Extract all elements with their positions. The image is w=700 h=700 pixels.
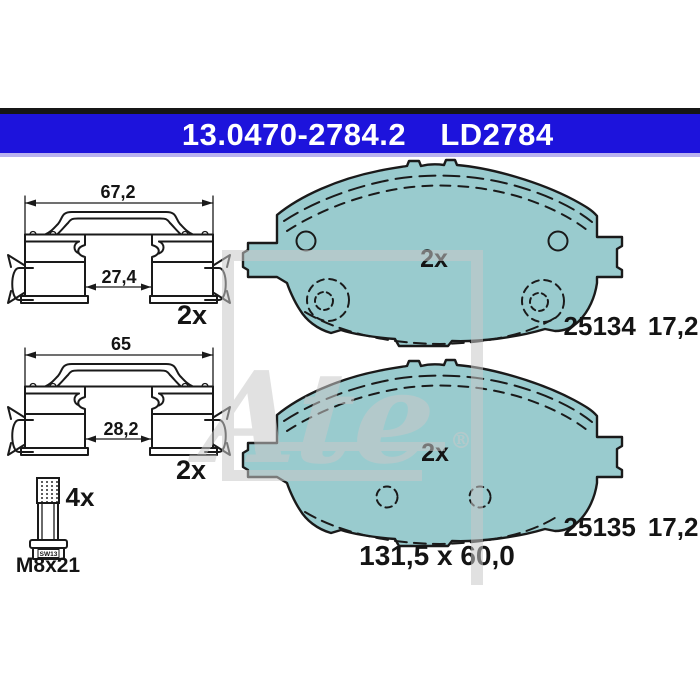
bolt-thread-size-label: M8x21 [16,554,81,577]
watermark-frame-top [222,250,483,261]
clip1-outer-width-label: 67,2 [100,182,135,202]
bolt-knurl [37,478,59,503]
clip2-inner-width-label: 28,2 [103,419,138,439]
watermark-brand-text: Ate [186,344,440,492]
product-image: 13.0470-2784.2 LD2784 [0,0,700,700]
technical-drawing: 67,2 27,4 2x 65 28,2 2x SW13 4x M8x21 [0,0,700,700]
bolt-flange [30,540,67,548]
clip2-outer-width-label: 65 [111,334,131,354]
pad1-reference-label: 2513417,2 [564,311,699,341]
pad-dimensions-label: 131,5 x 60,0 [359,540,515,571]
bolt-quantity-label: 4x [66,482,95,512]
clip1-inner-width-label: 27,4 [101,267,136,287]
clip-drawing-1: 67,2 27,4 2x [8,182,230,330]
bolt-drawing: SW13 4x M8x21 [16,478,95,577]
watermark-frame-right [471,250,483,585]
pad2-reference-label: 2513517,2 [564,512,699,542]
clip1-quantity-label: 2x [177,300,207,330]
watermark-registered-mark: ® [450,428,472,454]
